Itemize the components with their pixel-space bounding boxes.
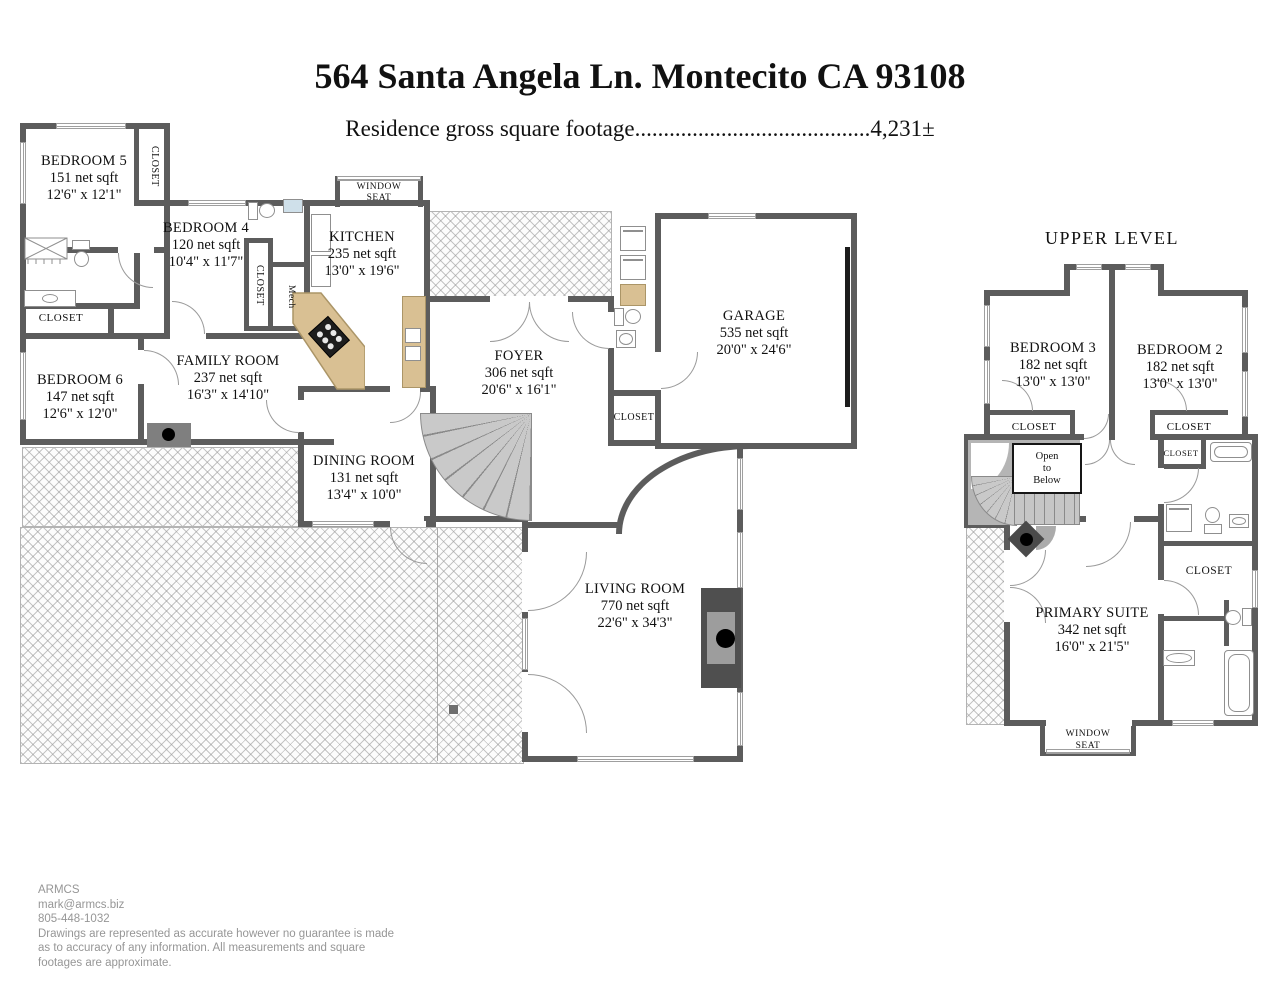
footer-credits: ARMCS mark@armcs.biz 805-448-1032 Drawin… [38,883,394,970]
patio-divider-line [437,528,438,761]
fireplace-dot [162,428,175,441]
bedroom4-door [172,301,205,334]
footer-company: ARMCS [38,883,394,898]
toilet [1226,608,1252,626]
closet-label: CLOSET [605,412,663,423]
door-gap [1046,720,1132,726]
window [1172,720,1214,726]
washer [620,226,646,251]
room-label-kitchen: KITCHEN 235 net sqft 13'0" x 19'6" [287,229,437,280]
closet-label: CLOSET [247,248,265,322]
entry-door-left [490,302,530,342]
upper-balcony [966,527,1006,725]
kitchen-sink [405,346,421,361]
wall [851,213,857,449]
room-label-primary-suite: PRIMARY SUITE 342 net sqft 16'0" x 21'5" [1017,605,1167,656]
page-title: 564 Santa Angela Ln. Montecito CA 93108 [0,55,1280,97]
vanity-sink [1163,650,1195,666]
living-patio-door-2 [528,674,587,733]
hall-door-right [1110,440,1135,465]
closet-label: CLOSET [26,312,96,324]
upper-bath-door [1164,468,1199,503]
upper-closet-door [1164,580,1199,615]
garage-door [845,247,850,407]
bath-sink [616,330,636,348]
window-bay-seat [337,176,421,181]
window [577,756,694,762]
water-heater [620,284,646,306]
room-label-garage: GARAGE 535 net sqft 20'0" x 24'6" [679,308,829,359]
wall [608,440,660,446]
window-seat-label: WINDOW SEAT [1049,728,1127,752]
bathtub [1224,650,1254,716]
room-label-bedroom5: BEDROOM 5 151 net sqft 12'6" x 12'1" [9,153,159,204]
footer-email: mark@armcs.biz [38,898,394,913]
patio-top [428,211,612,300]
room-label-family: FAMILY ROOM 237 net sqft 16'3" x 14'10" [153,353,303,404]
wall [108,303,114,339]
footer-phone: 805-448-1032 [38,912,394,927]
closet-label: CLOSET [1152,421,1226,433]
window [1252,570,1258,608]
room-label-dining: DINING ROOM 131 net sqft 13'4" x 10'0" [289,453,439,504]
wall-bay [1131,726,1136,754]
shower [24,237,68,265]
wall [1158,290,1248,296]
wall [655,213,857,219]
wall [1158,541,1258,546]
kitchen-sink [405,328,421,343]
vanity-sink [40,292,60,305]
footer-disclaimer-line3: footages are approximate. [38,956,394,971]
room-label-bedroom2: BEDROOM 2 182 net sqft 13'0" x 13'0" [1105,342,1255,393]
primary-suite-door [1086,522,1131,567]
room-label-bedroom6: BEDROOM 6 147 net sqft 12'6" x 12'0" [5,372,155,423]
footer-disclaimer-line1: Drawings are represented as accurate how… [38,927,394,942]
footer-disclaimer-line2: as to accuracy of any information. All m… [38,941,394,956]
toilet [248,202,274,220]
window-seat-label: WINDOW SEAT [340,182,418,204]
toilet [1204,508,1222,534]
closet-label: CLOSET [1160,448,1202,458]
window [1125,264,1151,270]
mech-label: Mech [278,272,296,322]
open-to-below: Open to Below [1012,443,1082,494]
curved-wall [616,443,749,534]
entry-door-right [529,302,569,342]
cabinet [1166,504,1192,532]
toilet [614,308,640,326]
wall-bay [1040,726,1045,754]
window [708,213,756,219]
dining-hall-door [266,400,299,433]
hall-door-left [1085,440,1110,465]
toilet [72,240,90,266]
bath-sink [1229,514,1249,528]
room-label-foyer: FOYER 306 net sqft 20'6" x 16'1" [444,348,594,399]
patio-strip [22,447,300,527]
wall [522,522,622,528]
wall [1158,616,1228,621]
staircase-upper-treads [1014,492,1080,525]
bath-door [572,312,609,349]
closet-label: CLOSET [1172,565,1246,577]
fireplace-dot [716,629,735,648]
wall [244,326,273,331]
upper-level-heading: UPPER LEVEL [972,228,1252,249]
closet-label: CLOSET [142,133,160,199]
floor-plan-page: 564 Santa Angela Ln. Montecito CA 93108 … [0,0,1280,989]
kitchen-dining-door [390,392,421,423]
window [522,618,528,670]
patio-post [449,705,458,714]
bath-sink [283,199,303,213]
patio-large [20,527,524,764]
wall [655,443,857,449]
window [737,458,743,510]
window [737,532,743,588]
closet-label: CLOSET [997,421,1071,433]
window [1076,264,1102,270]
bathtub [1210,442,1252,462]
room-label-living: LIVING ROOM 770 net sqft 22'6" x 34'3" [560,581,710,632]
page-subtitle: Residence gross square footage..........… [0,116,1280,142]
window [188,200,246,206]
dryer [620,255,646,280]
balcony-door-1 [1010,550,1046,586]
landing-door [1084,414,1109,439]
window [312,521,374,527]
fireplace-dot [1020,533,1033,546]
wall [608,390,660,396]
window [737,692,743,746]
wall [20,333,170,339]
wall [984,290,1068,296]
